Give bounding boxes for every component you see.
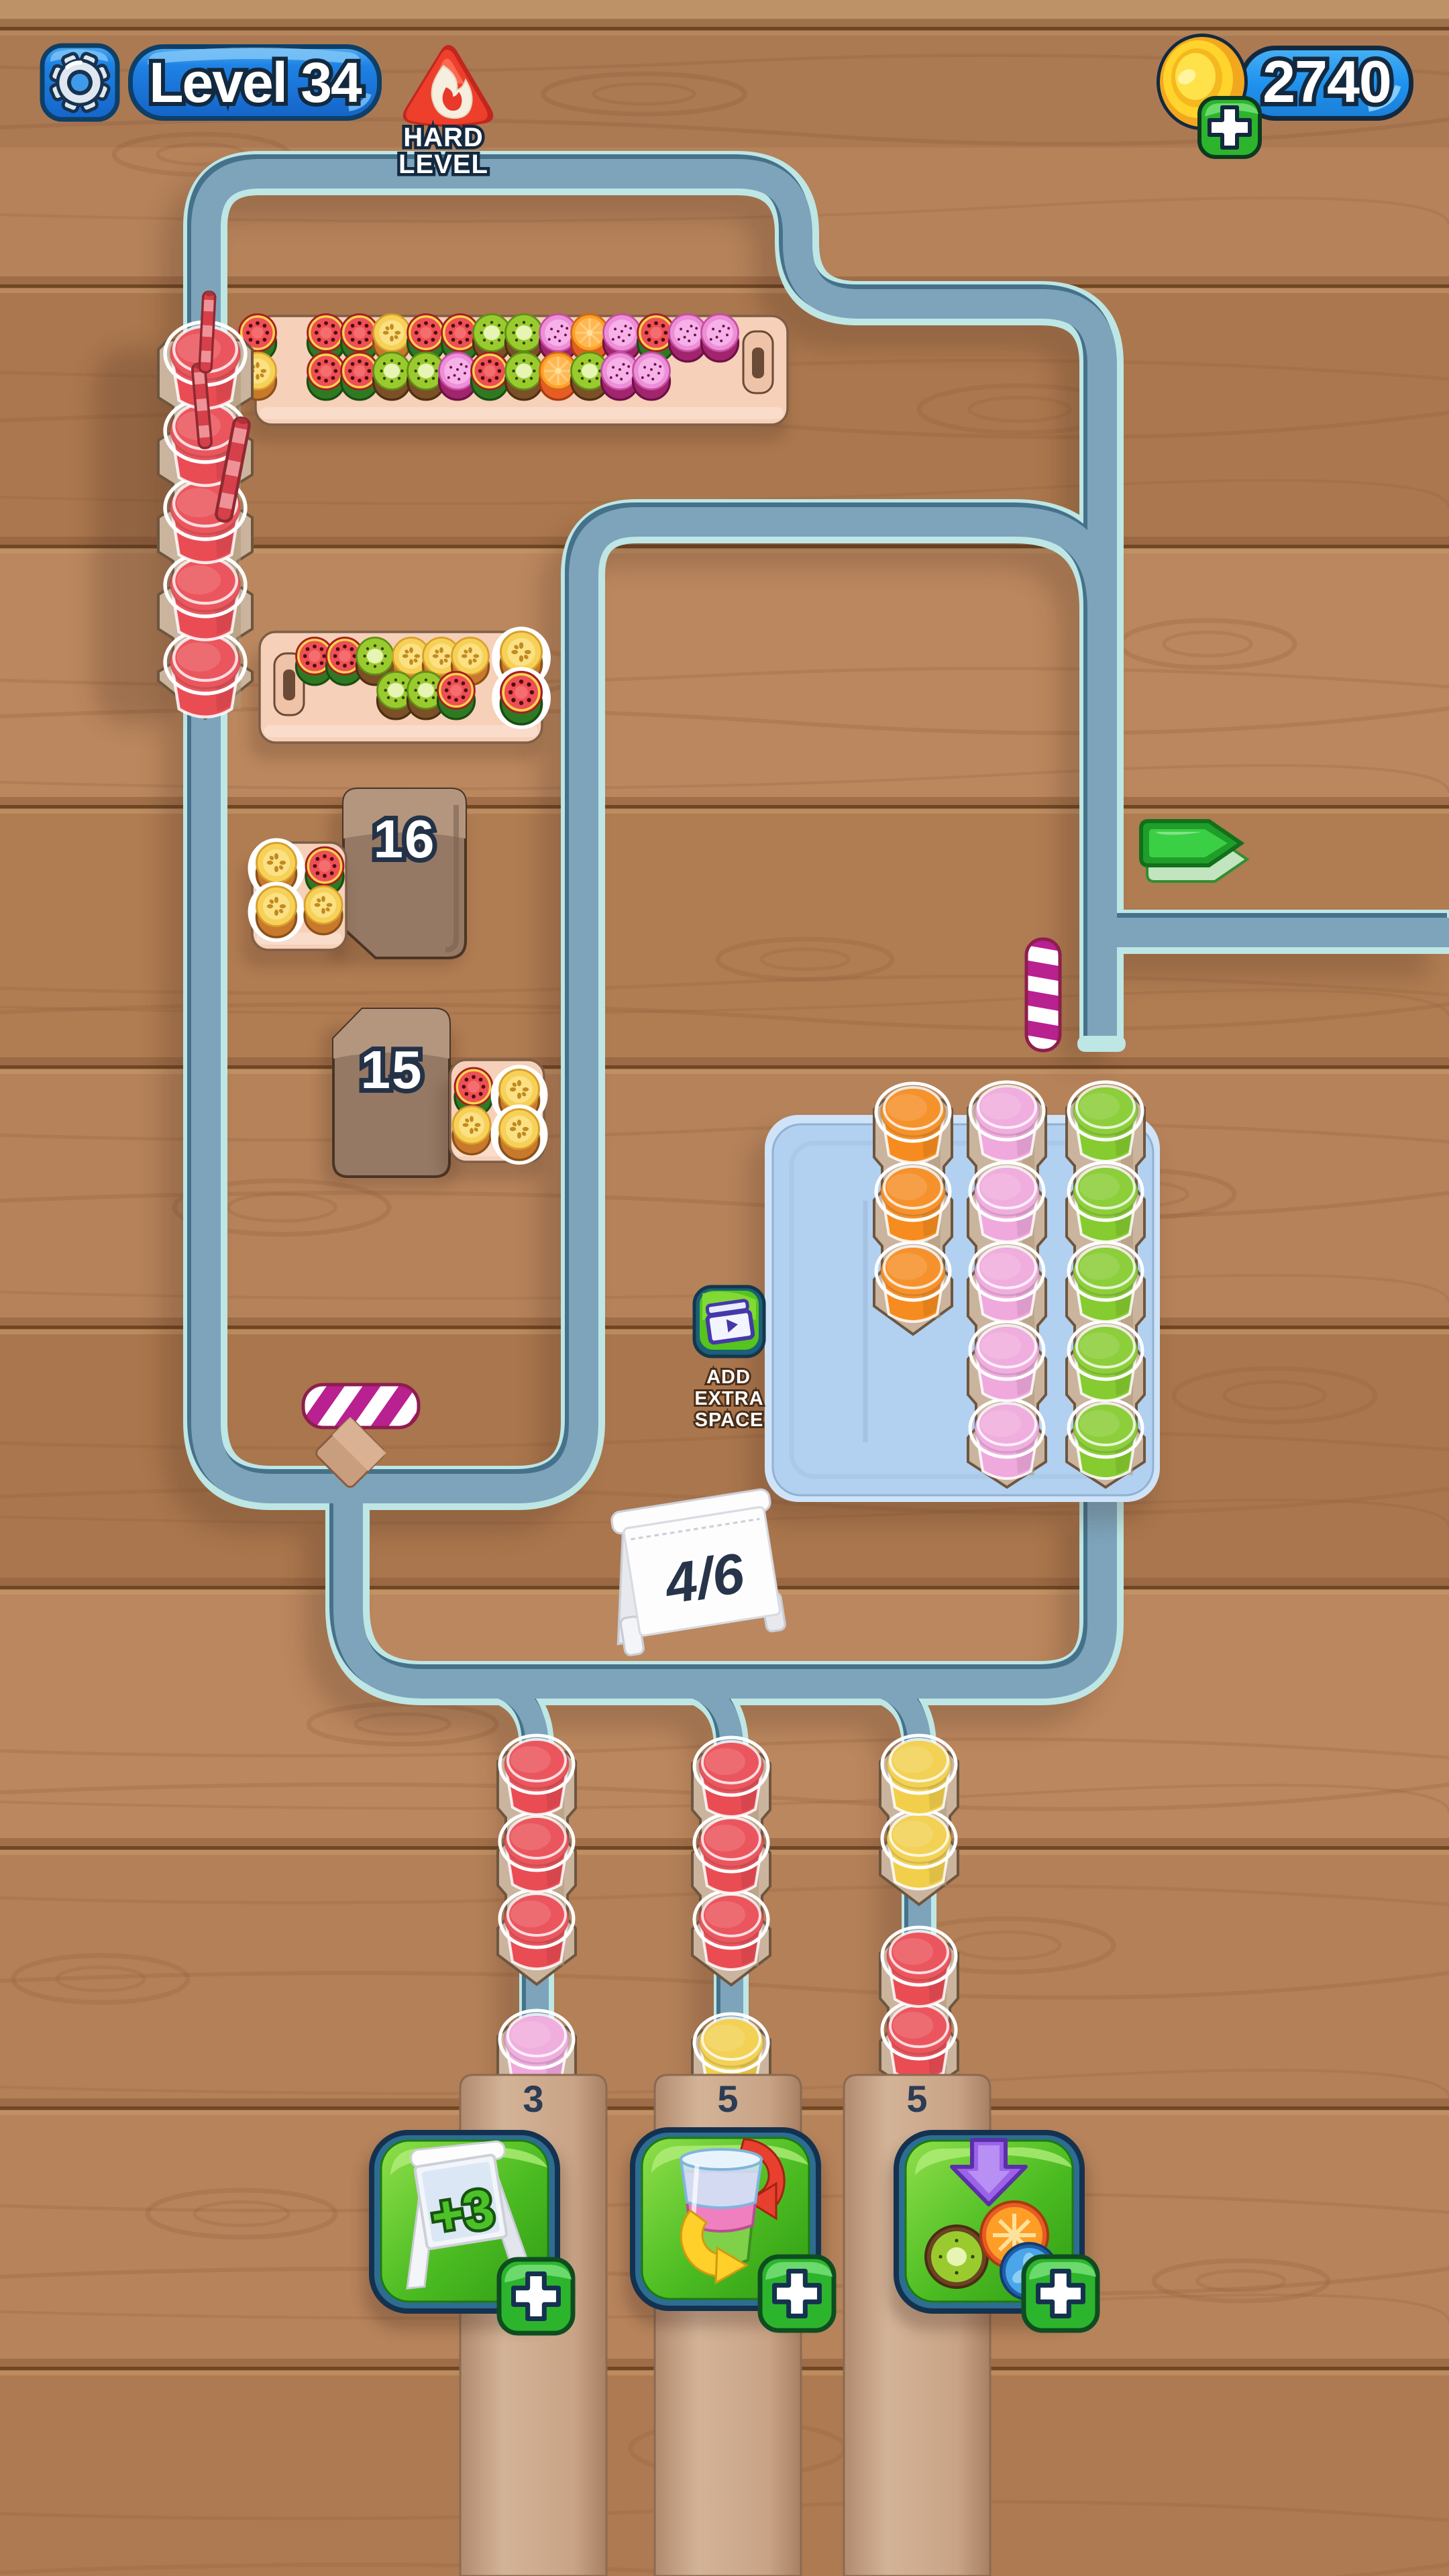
svg-text:EXTRA: EXTRA: [694, 1388, 763, 1409]
svg-text:+3: +3: [427, 2178, 498, 2248]
svg-text:16: 16: [374, 809, 436, 869]
svg-text:3: 3: [523, 2078, 543, 2120]
svg-text:ADD: ADD: [706, 1366, 751, 1388]
svg-text:2740: 2740: [1263, 48, 1391, 115]
svg-text:5: 5: [906, 2078, 927, 2120]
svg-text:HARD: HARD: [403, 123, 484, 152]
svg-text:Level 34: Level 34: [149, 51, 362, 114]
svg-text:5: 5: [717, 2078, 738, 2120]
svg-text:15: 15: [361, 1040, 423, 1099]
svg-text:SPACE: SPACE: [695, 1409, 764, 1431]
svg-text:LEVEL: LEVEL: [398, 150, 488, 179]
svg-text:4/6: 4/6: [659, 1541, 749, 1616]
